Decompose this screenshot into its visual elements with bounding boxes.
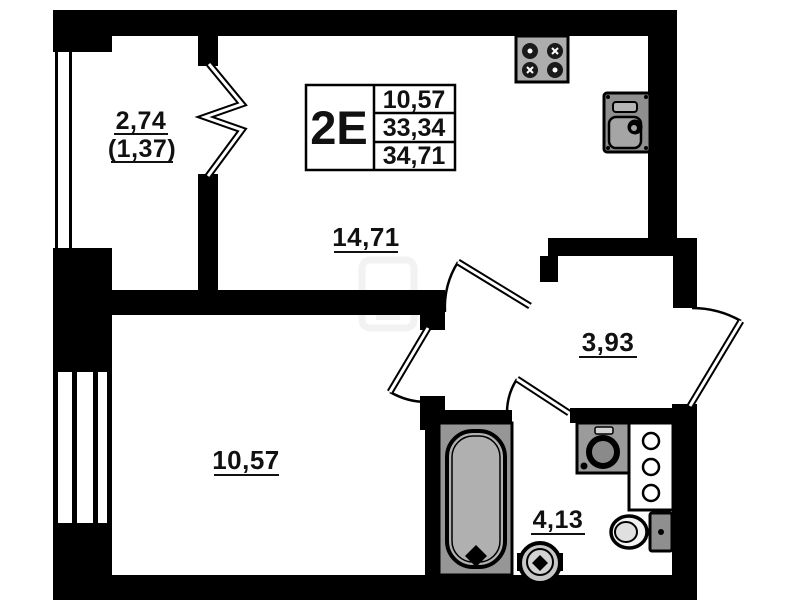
wall-segment-door-jamb [540, 256, 558, 282]
door-leaf [390, 328, 428, 392]
toilet-icon [611, 513, 672, 551]
bathroom-area-label: 4,13 [531, 506, 585, 534]
washing-machine-knob [581, 463, 588, 470]
toilet-tank-button [658, 529, 664, 535]
toilet-bowl-inner [615, 522, 637, 542]
wall-segment-balcony-partition-lower [198, 174, 218, 292]
title-block: 2E 10,57 33,34 34,71 [306, 85, 455, 170]
window-glazing-line [55, 52, 58, 248]
door-swing-arc [445, 262, 458, 312]
bathtub-icon [439, 423, 512, 575]
wall-segment-right-lower [672, 404, 697, 600]
riser-pipe [643, 459, 659, 475]
kitchen-sink-drainboard [613, 102, 637, 112]
hallway-area-label: 3,93 [579, 327, 637, 357]
kitchen-sink-faucet [631, 125, 637, 131]
wall-segment-bedroom-top [112, 290, 445, 315]
washing-machine-icon [577, 423, 631, 473]
stove-icon [516, 36, 568, 82]
wall-segment-left-top-pier [53, 10, 112, 52]
window-glazing-line [107, 372, 112, 523]
balcony-window [55, 52, 72, 248]
wall-segment-bottom [53, 575, 697, 600]
door-swing-arc [692, 308, 741, 321]
kitchen-sink-dot [606, 146, 610, 150]
riser-cabinet-icon [629, 423, 673, 510]
door-leaf [458, 262, 530, 306]
wall-segment-bathroom-left [425, 396, 439, 577]
entrance-door [690, 308, 741, 406]
bedroom-area-label: 10,57 [212, 445, 280, 475]
window-glazing-line [53, 372, 58, 523]
kitchen-living-area-text: 14,71 [332, 222, 400, 252]
floor-plan-page: 2E 10,57 33,34 34,71 2,74 (1,37) 14,71 3… [0, 0, 799, 600]
door-swing-arc [507, 379, 517, 413]
door-leaf [690, 321, 741, 406]
window-glazing-line [93, 372, 98, 523]
balcony-area-text: 2,74 [116, 107, 167, 135]
kitchen-sink-icon [604, 93, 650, 152]
window-glazing-line [69, 52, 72, 248]
total-area-value: 34,71 [383, 142, 446, 170]
bathroom-door [507, 379, 569, 413]
riser-pipe [643, 433, 659, 449]
kitchen-sink-dot [644, 146, 648, 150]
window-glazing-line [72, 372, 77, 523]
wall-segment-bathroom-top-right [570, 408, 673, 423]
wall-segment-hall-right [673, 238, 697, 308]
door-leaf [517, 379, 569, 413]
kitchen-sink-dot [606, 95, 610, 99]
wall-segment-top [53, 10, 677, 36]
stove-burner-mark [553, 68, 558, 73]
wall-segment-left-bottom-pier [53, 523, 112, 600]
living-area-value: 10,57 [383, 86, 446, 114]
hallway-area-text: 3,93 [582, 327, 635, 357]
wall-segment-left-mid-pier [53, 248, 112, 372]
wall-segment-right-upper [648, 10, 677, 246]
wall-segment-balcony-partition-upper [198, 36, 218, 66]
stove-burner-mark [528, 49, 533, 54]
floor-plan-canvas: 2E 10,57 33,34 34,71 2,74 (1,37) 14,71 3… [0, 0, 799, 600]
bathroom-area-text: 4,13 [533, 506, 584, 534]
bedroom-door [390, 328, 428, 402]
unit-type-label: 2E [310, 101, 368, 154]
kitchen-living-area-label: 14,71 [332, 222, 400, 252]
floor-area-value: 33,34 [383, 114, 446, 142]
pedestal-sink-icon [517, 543, 563, 583]
riser-pipe [643, 485, 659, 501]
wall-segment-bedroom-door-jamb-top [420, 303, 445, 330]
balcony-door [205, 64, 242, 176]
bedroom-area-text: 10,57 [212, 445, 280, 475]
balcony-area-label: 2,74 (1,37) [108, 107, 176, 163]
living-room-door [445, 262, 530, 312]
bedroom-window [53, 372, 112, 523]
kitchen-sink-dot [644, 95, 648, 99]
washing-machine-display [595, 427, 613, 434]
balcony-reduced-area-text: (1,37) [108, 135, 176, 163]
